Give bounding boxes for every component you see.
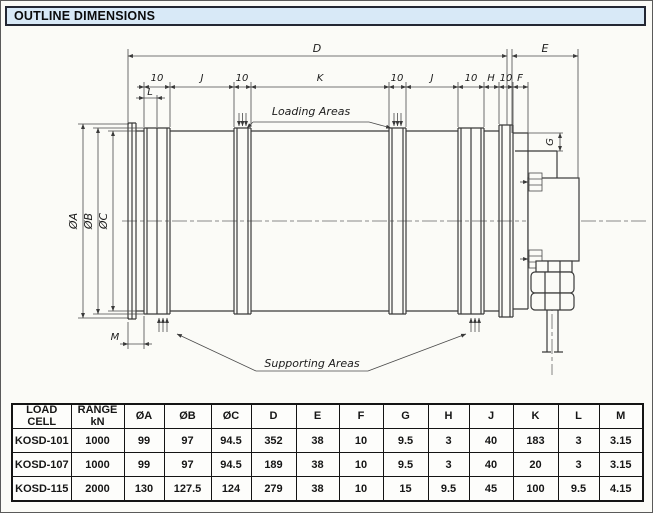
- table-cell: 38: [296, 453, 339, 477]
- table-header-cell: LOAD CELL: [12, 404, 71, 429]
- table-header-row: LOAD CELLRANGE kNØAØBØCDEFGHJKLM: [12, 404, 643, 429]
- table-header-cell: G: [383, 404, 428, 429]
- page: OUTLINE DIMENSIONS: [0, 0, 653, 513]
- dim-label-dia-b: ØB: [82, 213, 95, 230]
- table-cell: 99: [124, 453, 164, 477]
- table-cell: 40: [469, 453, 513, 477]
- table-row: KOSD-1152000130127.51242793810159.545100…: [12, 477, 643, 502]
- dim-label-j-2: J: [429, 73, 434, 84]
- dim-label-dia-c: ØC: [97, 213, 110, 231]
- hex-nut-upper: [531, 272, 574, 293]
- dim-label-10-1: 10: [151, 73, 164, 84]
- table-cell: 4.15: [599, 477, 643, 502]
- dim-label-g: G: [545, 138, 556, 146]
- table-header-cell: M: [599, 404, 643, 429]
- dim-label-m: M: [111, 332, 120, 343]
- table-header-cell: RANGE kN: [71, 404, 124, 429]
- dim-label-j-1: J: [199, 73, 204, 84]
- hex-nut-lower: [531, 293, 574, 310]
- table-cell: 97: [164, 453, 211, 477]
- table-cell: 97: [164, 429, 211, 453]
- table-cell: 20: [513, 453, 558, 477]
- load-cell-name: KOSD-115: [12, 477, 71, 502]
- table-header-cell: ØC: [211, 404, 251, 429]
- table-header-cell: D: [251, 404, 296, 429]
- table-cell: 3.15: [599, 429, 643, 453]
- dim-label-f: F: [517, 73, 523, 84]
- dim-label-10-3: 10: [391, 73, 404, 84]
- table-cell: 124: [211, 477, 251, 502]
- cable-gland: [531, 261, 574, 352]
- screw-top: [529, 173, 542, 191]
- supporting-areas-label: Supporting Areas: [264, 357, 360, 370]
- dim-label-e: E: [542, 42, 549, 55]
- table-cell: 10: [339, 477, 383, 502]
- table-cell: 279: [251, 477, 296, 502]
- table-header-cell: ØA: [124, 404, 164, 429]
- load-cell-name: KOSD-101: [12, 429, 71, 453]
- dim-label-10-5: 10: [500, 73, 513, 84]
- table-cell: 45: [469, 477, 513, 502]
- dim-label-h: H: [487, 73, 495, 84]
- table-header-cell: H: [428, 404, 469, 429]
- table-cell: 1000: [71, 429, 124, 453]
- dimension-labels: D E 10 J 10 K 10 J 10 H 10 F L M ØA ØB Ø…: [67, 42, 556, 370]
- table-cell: 3.15: [599, 453, 643, 477]
- table-header-cell: ØB: [164, 404, 211, 429]
- table-cell: 94.5: [211, 429, 251, 453]
- table-cell: 40: [469, 429, 513, 453]
- junction-box: [520, 173, 579, 268]
- table-header-cell: F: [339, 404, 383, 429]
- table-row: KOSD-1011000999794.535238109.534018333.1…: [12, 429, 643, 453]
- dimension-lines: [78, 49, 578, 371]
- dim-label-l: L: [147, 87, 153, 98]
- table-body: KOSD-1011000999794.535238109.534018333.1…: [12, 429, 643, 502]
- dim-label-10-2: 10: [236, 73, 249, 84]
- load-cell-name: KOSD-107: [12, 453, 71, 477]
- table-cell: 352: [251, 429, 296, 453]
- outline-drawing: D E 10 J 10 K 10 J 10 H 10 F L M ØA ØB Ø…: [1, 1, 653, 401]
- table-cell: 9.5: [558, 477, 599, 502]
- cable: [542, 310, 563, 352]
- dim-label-dia-a: ØA: [67, 213, 80, 230]
- table-cell: 1000: [71, 453, 124, 477]
- dimension-table: LOAD CELLRANGE kNØAØBØCDEFGHJKLM KOSD-10…: [11, 403, 644, 502]
- table-cell: 130: [124, 477, 164, 502]
- table-cell: 2000: [71, 477, 124, 502]
- table-cell: 9.5: [383, 429, 428, 453]
- table-cell: 127.5: [164, 477, 211, 502]
- table-cell: 38: [296, 429, 339, 453]
- table-cell: 3: [428, 429, 469, 453]
- table-cell: 3: [558, 429, 599, 453]
- table-cell: 3: [428, 453, 469, 477]
- table-cell: 189: [251, 453, 296, 477]
- table-cell: 99: [124, 429, 164, 453]
- table-cell: 9.5: [428, 477, 469, 502]
- table-cell: 94.5: [211, 453, 251, 477]
- table-header-cell: J: [469, 404, 513, 429]
- table-header-cell: E: [296, 404, 339, 429]
- table-cell: 100: [513, 477, 558, 502]
- table-cell: 15: [383, 477, 428, 502]
- dim-label-k: K: [317, 73, 325, 84]
- loading-areas-label: Loading Areas: [272, 105, 351, 118]
- table-cell: 38: [296, 477, 339, 502]
- dim-label-10-4: 10: [465, 73, 478, 84]
- table-cell: 3: [558, 453, 599, 477]
- table-row: KOSD-1071000999794.518938109.53402033.15: [12, 453, 643, 477]
- table-cell: 10: [339, 453, 383, 477]
- table-header-cell: L: [558, 404, 599, 429]
- table-cell: 183: [513, 429, 558, 453]
- table-cell: 9.5: [383, 453, 428, 477]
- dim-label-d: D: [313, 42, 321, 55]
- table-cell: 10: [339, 429, 383, 453]
- table-header-cell: K: [513, 404, 558, 429]
